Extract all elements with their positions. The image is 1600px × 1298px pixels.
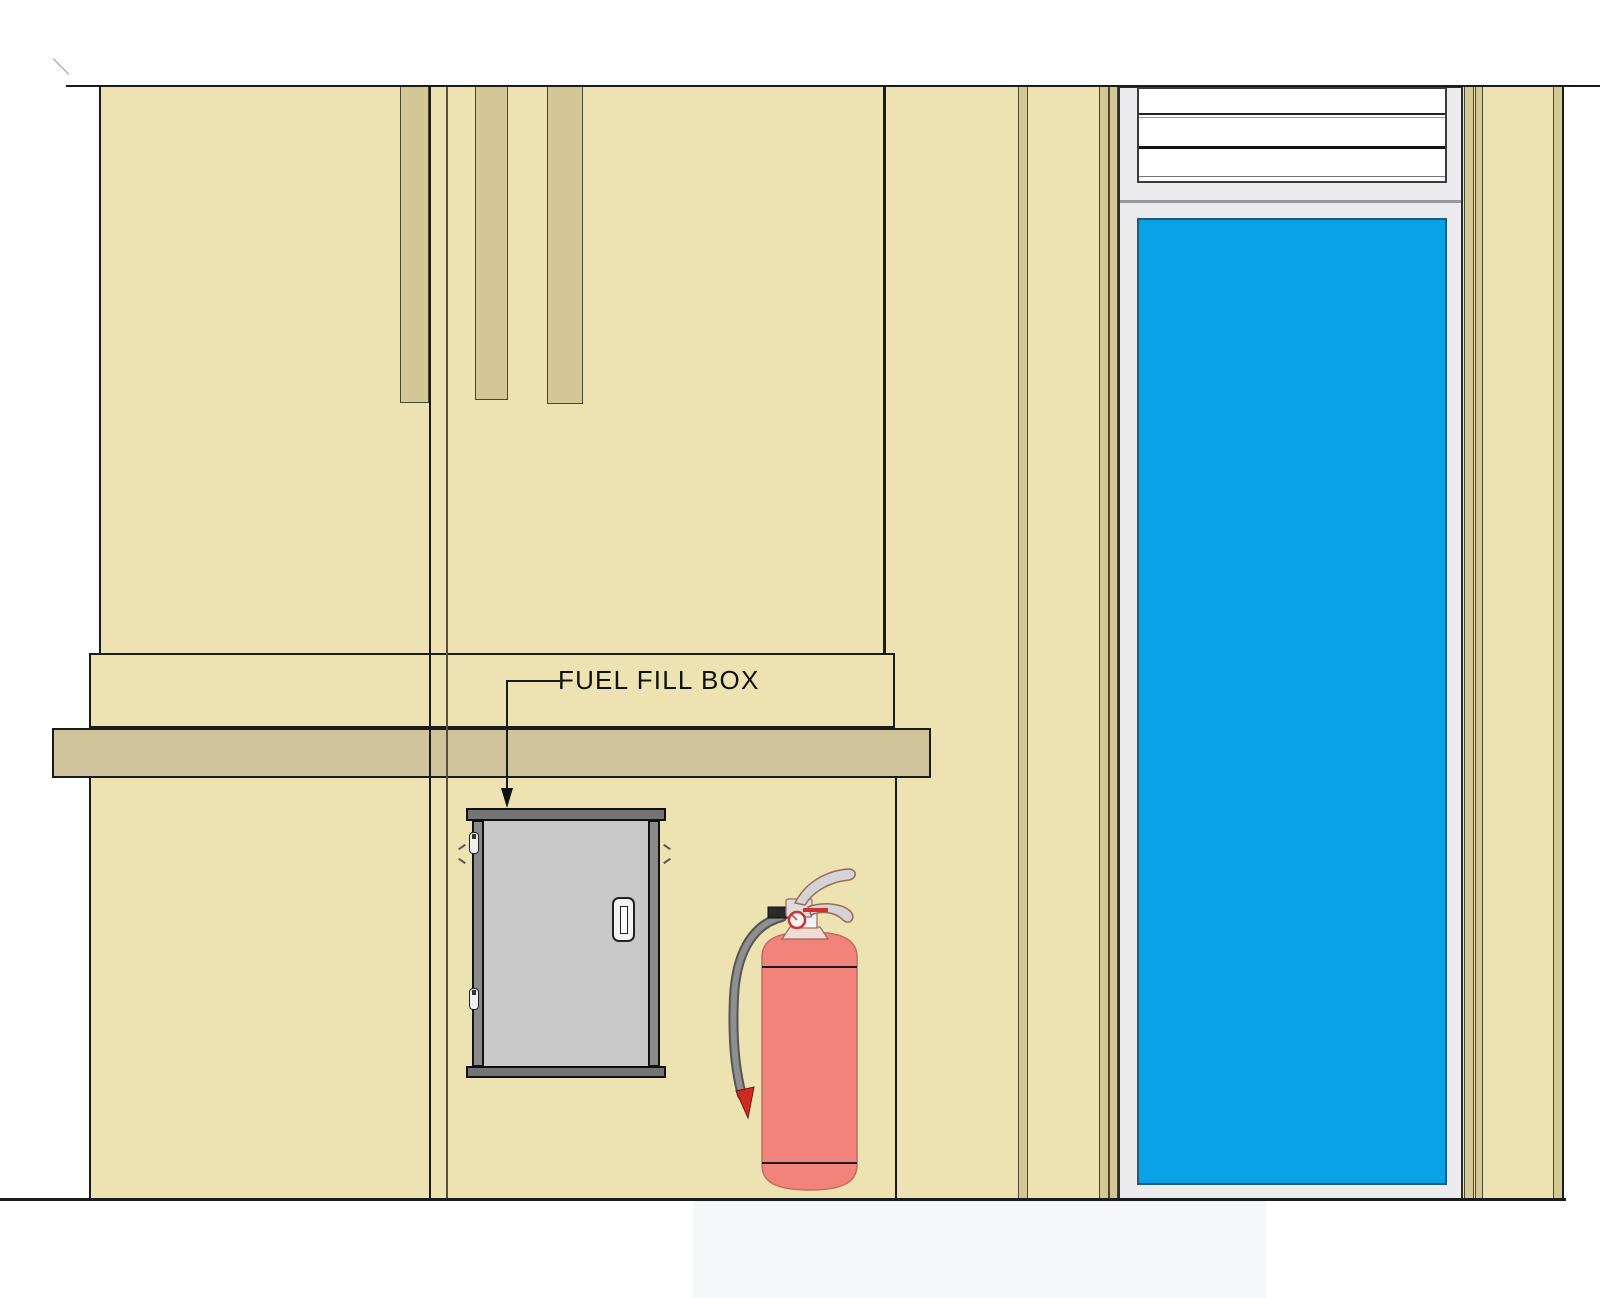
wall-right-edge (1562, 86, 1564, 1200)
corner-tick (53, 58, 69, 74)
trim-strip-b (475, 86, 508, 400)
wall-left-edge-lower (89, 778, 91, 1200)
wall-left-edge-upper (99, 86, 101, 653)
safety-pin (803, 908, 828, 912)
counter-ledge (52, 728, 931, 778)
ground-line (0, 1198, 1566, 1201)
hinge-top-pin (472, 834, 476, 839)
fuel-fill-box-label: FUEL FILL BOX (558, 665, 760, 696)
leader-arrowhead (501, 788, 513, 808)
louver-slat-line-1 (1139, 113, 1445, 115)
trim-strip-narrow-2 (1099, 86, 1109, 1200)
panel-joint-line-upper-right (883, 86, 886, 653)
cabinet-door (482, 821, 650, 1066)
roof-line (66, 85, 1600, 87)
hose-fitting (768, 907, 788, 918)
louver-slat-line-2 (1139, 117, 1445, 118)
paving-slab (693, 1201, 1266, 1298)
panel-joint-line-1 (429, 86, 431, 1200)
elevation-drawing: FUEL FILL BOX (0, 0, 1600, 1298)
trim-strip-narrow-5 (1475, 86, 1483, 1200)
louver-slat-line-3 (1139, 146, 1445, 149)
carry-handle (795, 869, 855, 905)
louver-slat-line-4 (1139, 176, 1445, 177)
louver-vent (1137, 87, 1447, 183)
trim-strip-narrow-3 (1109, 86, 1118, 1200)
trim-strip-c (547, 86, 583, 404)
wall-panel-lower-left (90, 778, 104, 1200)
panel-joint-line-2 (446, 86, 448, 1200)
panel-joint-line-lower-right (895, 778, 897, 1200)
handle-slot (620, 906, 628, 934)
valve-cone (782, 927, 828, 939)
leader-line-horizontal (507, 680, 560, 682)
trim-strip-narrow-4 (1464, 86, 1474, 1200)
trim-strip-narrow-1 (1018, 86, 1028, 1200)
tank-body (762, 932, 857, 1190)
glass-panel (1137, 218, 1447, 1185)
canopy-band (89, 653, 895, 728)
leader-line-vertical (506, 680, 508, 790)
nozzle (736, 1087, 754, 1118)
hinge-bottom-pin (472, 990, 476, 995)
fire-extinguisher (700, 855, 870, 1195)
cabinet-bottom-cap (466, 1066, 666, 1078)
trim-strip-a (400, 86, 429, 403)
transom-divider (1120, 200, 1461, 203)
